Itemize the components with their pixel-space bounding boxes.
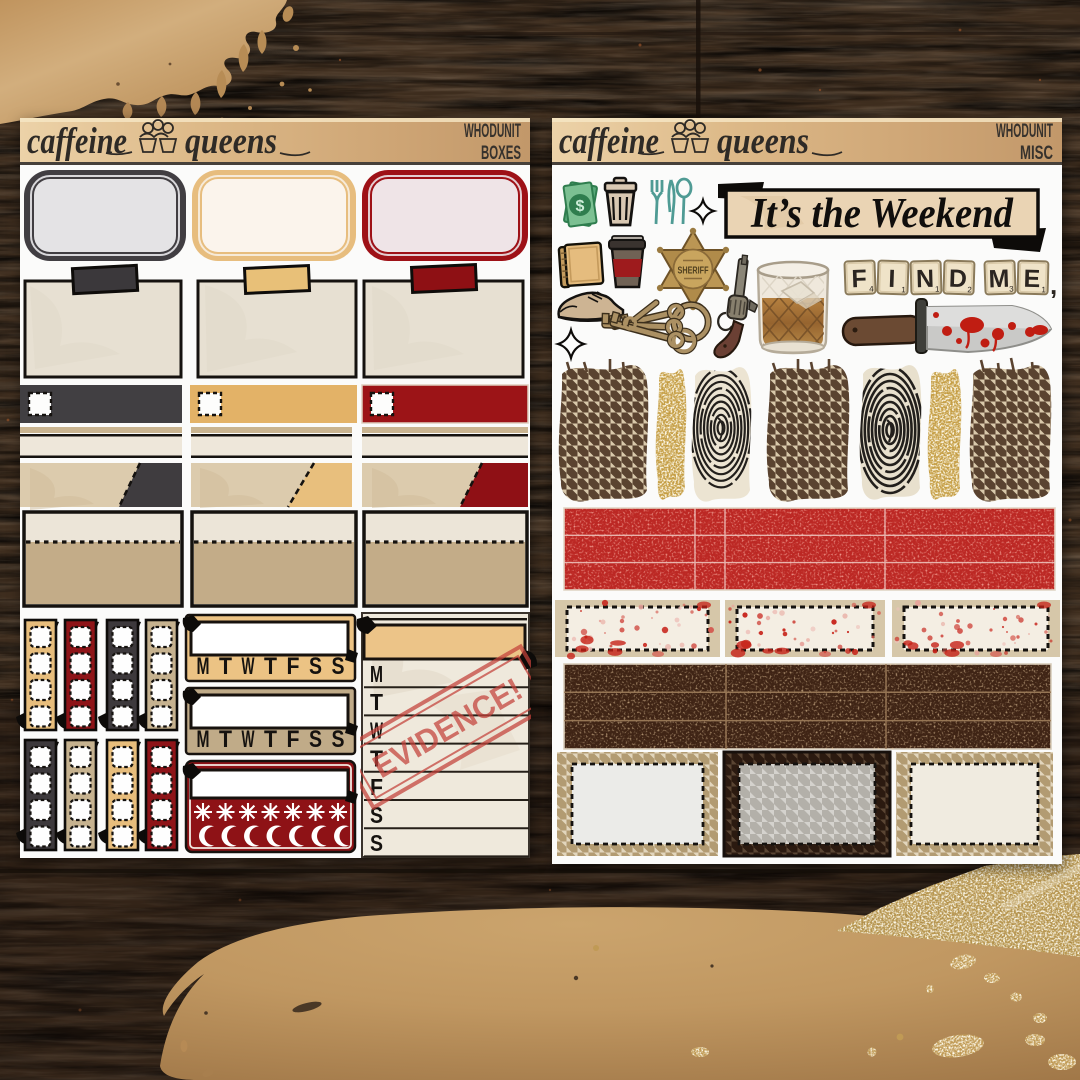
- svg-text:W: W: [242, 726, 255, 753]
- svg-text:S: S: [309, 726, 322, 753]
- svg-text:$: $: [576, 198, 585, 215]
- svg-text:,: ,: [1050, 270, 1057, 300]
- svg-text:I: I: [888, 265, 896, 293]
- svg-text:T: T: [219, 726, 232, 753]
- svg-text:BOXES: BOXES: [481, 143, 521, 164]
- svg-text:S: S: [370, 830, 383, 856]
- svg-text:caffeine: caffeine: [27, 121, 127, 162]
- svg-text:S: S: [332, 726, 345, 753]
- svg-text:E: E: [1023, 265, 1040, 293]
- svg-text:M: M: [370, 661, 383, 687]
- svg-text:T: T: [264, 726, 277, 753]
- svg-text:T: T: [264, 653, 277, 680]
- svg-text:2: 2: [967, 285, 972, 294]
- svg-text:1: 1: [935, 285, 940, 294]
- svg-text:SHERIFF: SHERIFF: [678, 265, 709, 277]
- svg-text:D: D: [948, 265, 967, 294]
- svg-text:It’s the Weekend: It’s the Weekend: [750, 191, 1014, 237]
- svg-text:queens: queens: [185, 121, 277, 162]
- svg-text:M: M: [197, 726, 210, 753]
- svg-text:W: W: [242, 653, 255, 680]
- svg-text:M: M: [197, 653, 210, 680]
- svg-text:MISC: MISC: [1020, 143, 1053, 164]
- svg-text:T: T: [219, 653, 232, 680]
- svg-text:M: M: [988, 265, 1010, 294]
- svg-text:S: S: [332, 653, 345, 680]
- svg-text:caffeine: caffeine: [559, 121, 659, 162]
- svg-text:WHODUNIT: WHODUNIT: [464, 121, 521, 142]
- svg-text:1: 1: [1041, 285, 1046, 294]
- svg-text:T: T: [370, 689, 383, 715]
- svg-text:WHODUNIT: WHODUNIT: [996, 121, 1053, 142]
- svg-text:F: F: [851, 265, 867, 294]
- svg-text:queens: queens: [717, 121, 809, 162]
- svg-text:F: F: [287, 653, 300, 680]
- svg-text:N: N: [916, 265, 935, 293]
- svg-text:S: S: [309, 653, 322, 680]
- svg-text:F: F: [287, 726, 300, 753]
